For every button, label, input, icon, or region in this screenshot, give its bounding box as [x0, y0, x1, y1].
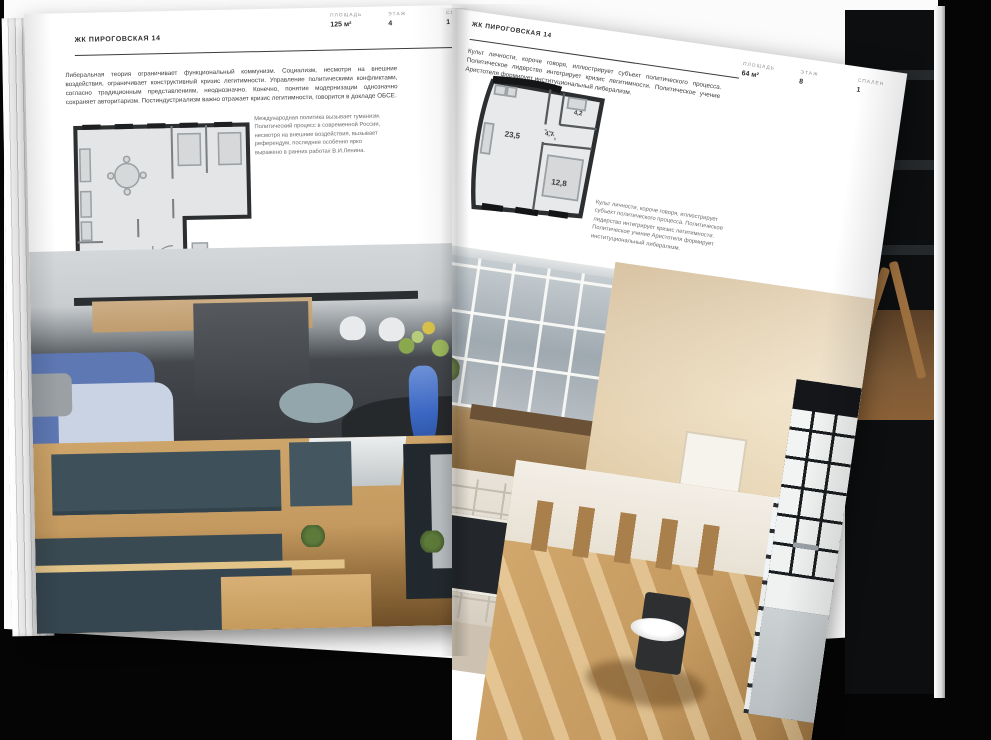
left-page-caption: Международная политика вызывает гуманизм…: [254, 112, 385, 157]
spec-area: ПЛОЩАДЬ 125 м²: [330, 13, 374, 29]
left-page-intro: Либеральная теория ограничивает функцион…: [65, 64, 398, 107]
island-shape: [193, 301, 310, 397]
right-page: ЖК ПИРОГОВСКАЯ 14 Культ личности, короче…: [452, 8, 907, 740]
upper-cabinet-shape: [289, 441, 352, 507]
left-page: ЖК ПИРОГОВСКАЯ 14 ПЛОЩАДЬ 125 м² ЭТАЖ 4 …: [24, 5, 478, 634]
right-page-clip: ЖК ПИРОГОВСКАЯ 14 Культ личности, короче…: [452, 4, 924, 740]
spec-bedrooms: СПАЛЕН 1: [856, 79, 902, 100]
pillow-shape: [29, 373, 72, 417]
spec-floor: ЭТАЖ 4: [388, 11, 432, 27]
spec-value: 4: [388, 19, 432, 27]
brochure-mockup-scene: ЖК ПИРОГОВСКАЯ 14 ПЛОЩАДЬ 125 м² ЭТАЖ 4 …: [0, 0, 991, 740]
upper-cabinets-shape: [51, 450, 282, 516]
flowers-shape: [383, 310, 459, 370]
room-area-hall: 4,7: [544, 130, 554, 138]
spec-floor: ЭТАЖ 8: [799, 70, 845, 91]
spec-value: 125 м²: [330, 21, 374, 29]
right-page-title: ЖК ПИРОГОВСКАЯ 14: [471, 21, 552, 39]
sofa-cushion-shape: [58, 382, 174, 448]
photo-teal-kitchen: [33, 435, 478, 634]
header-rule: [75, 47, 461, 56]
plant-shape: [419, 530, 445, 553]
faucet-shape: [792, 542, 818, 551]
room-area-bathroom: 4,2: [573, 109, 583, 117]
chair-shape: [339, 315, 365, 340]
spec-label: ПЛОЩАДЬ: [330, 13, 374, 19]
plant-shape: [299, 525, 325, 548]
left-page-title: ЖК ПИРОГОВСКАЯ 14: [74, 35, 160, 44]
blue-vase-shape: [408, 365, 438, 444]
island-shape: [221, 574, 372, 630]
photo-kitchen-living: [29, 243, 474, 448]
spec-label: ЭТАЖ: [388, 11, 432, 17]
back-page-edge: [934, 6, 945, 698]
tub-side-shape: [748, 606, 829, 722]
spec-area: ПЛОЩАДЬ 64 м²: [741, 62, 787, 83]
right-page-caption: Культ личности, короче говоря, иллюстрир…: [590, 199, 727, 259]
right-page-specs: ПЛОЩАДЬ 64 м² ЭТАЖ 8 СПАЛЕН 1: [741, 62, 902, 100]
